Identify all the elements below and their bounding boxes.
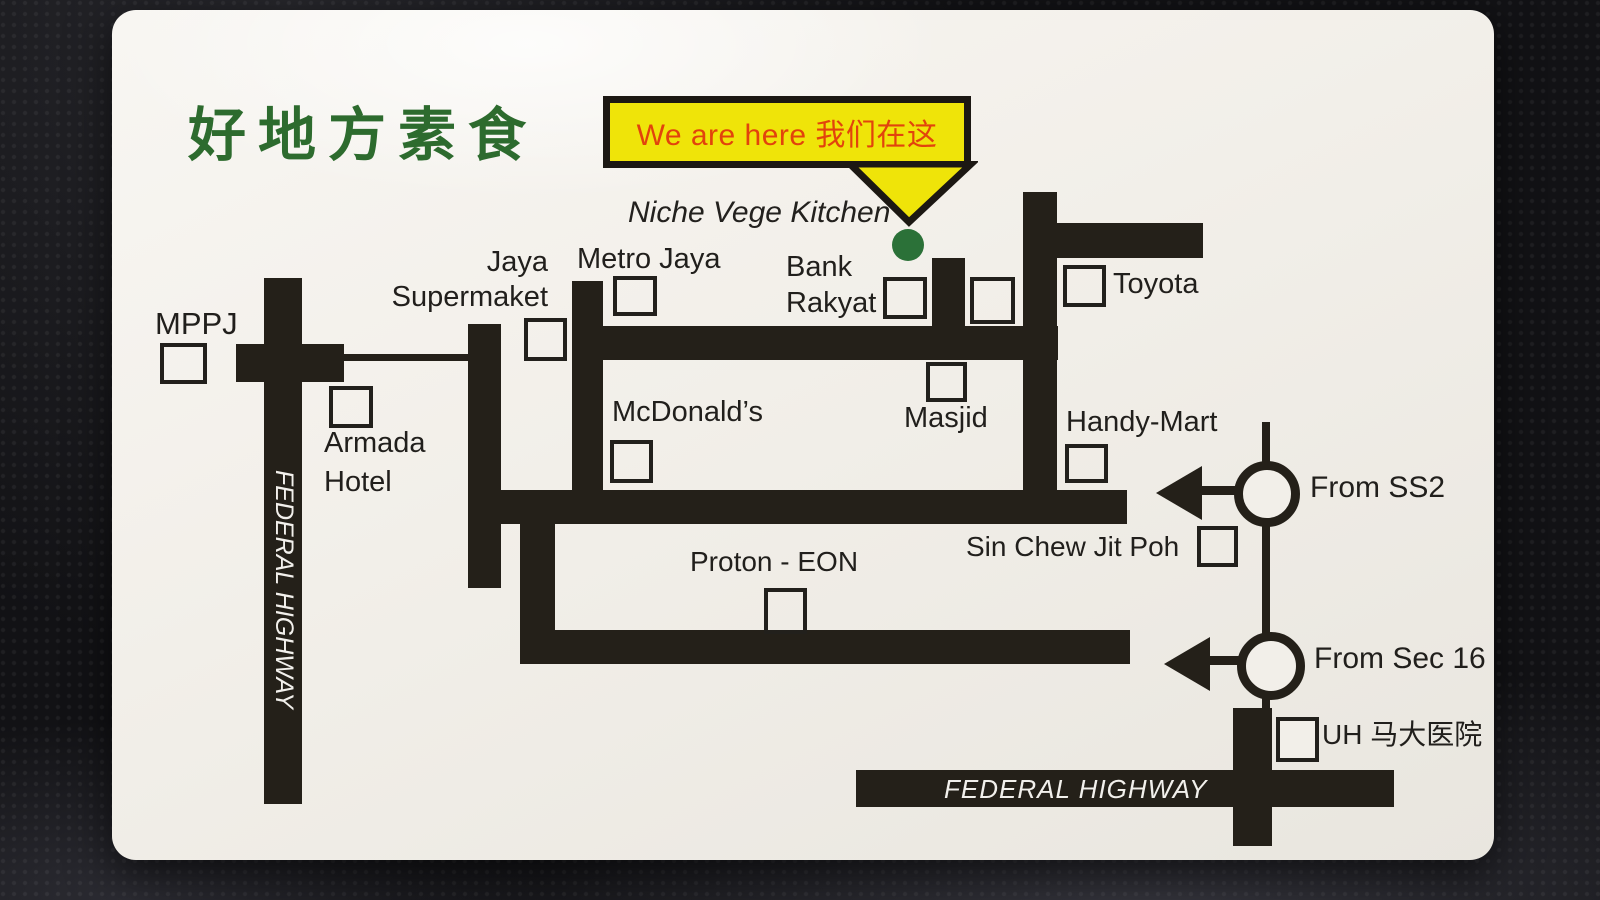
landmark-square-metro-jaya: [613, 276, 657, 316]
federal-highway-left-label: FEDERAL HIGHWAY: [269, 470, 298, 709]
road-bottom-crossing-vertical: [1233, 708, 1272, 846]
we-are-here-callout: We are here 我们在这: [603, 96, 971, 168]
road-block-top-horizontal: [572, 326, 1058, 360]
road-federal-highway-bottom: FEDERAL HIGHWAY: [856, 770, 1394, 807]
landmark-square-jaya-supermarket: [524, 318, 567, 361]
we-are-here-label: We are here 我们在这: [637, 110, 938, 154]
photo-background: 好地方素食 FEDERAL HIGHWAY FEDERAL HIGHWAY: [0, 0, 1600, 900]
landmark-square-uh-hospital: [1276, 717, 1319, 762]
restaurant-title-chinese: 好地方素食: [188, 88, 538, 172]
landmark-label-uh-hospital: UH 马大医院: [1322, 719, 1482, 751]
landmark-square-masjid: [926, 362, 967, 402]
landmark-square-toyota: [1063, 265, 1106, 307]
road-metro-jaya-vertical: [572, 281, 603, 523]
landmark-label-armada-hotel: Armada Hotel: [324, 424, 459, 502]
landmark-label-masjid: Masjid: [904, 402, 988, 435]
landmark-square-proton-eon: [764, 588, 807, 634]
landmark-label-mcdonalds: McDonald’s: [612, 396, 763, 429]
landmark-square-sin-chew: [1197, 526, 1238, 567]
arrow-tail-ss2: [1200, 486, 1238, 495]
arrow-tail-sec16: [1210, 656, 1242, 665]
landmark-label-sin-chew: Sin Chew Jit Poh: [966, 531, 1179, 563]
road-bottom-horizontal: [520, 630, 1130, 664]
direction-label-from-sec16: From Sec 16: [1314, 642, 1486, 676]
road-main-horizontal: [468, 490, 1127, 524]
arrow-left-icon-ss2: [1156, 466, 1202, 520]
road-bank-rakyat-stub: [932, 258, 965, 331]
road-jaya-vertical: [468, 324, 501, 588]
arrow-left-icon-sec16: [1164, 637, 1210, 691]
venue-name: Niche Vege Kitchen: [628, 196, 890, 230]
roundabout-from-ss2: [1234, 461, 1300, 527]
landmark-square-mcdonalds: [610, 440, 653, 483]
landmark-label-mppj: MPPJ: [155, 306, 238, 342]
location-dot: [892, 229, 924, 261]
landmark-label-metro-jaya: Metro Jaya: [577, 243, 720, 276]
roundabout-from-sec16: [1237, 632, 1305, 700]
federal-highway-bottom-label: FEDERAL HIGHWAY: [944, 774, 1208, 805]
road-thin-connector: [342, 354, 470, 361]
landmark-label-handy-mart: Handy-Mart: [1066, 406, 1218, 439]
road-cross-intersection: [236, 344, 344, 382]
direction-label-from-ss2: From SS2: [1310, 471, 1445, 505]
landmark-square-unlabeled: [970, 277, 1015, 324]
road-top-right-branch: [1056, 223, 1203, 258]
road-right-vertical: [1023, 192, 1057, 523]
landmark-square-handy-mart: [1065, 444, 1108, 483]
landmark-square-armada-hotel: [329, 386, 373, 428]
landmark-label-proton-eon: Proton - EON: [690, 546, 858, 578]
landmark-square-mppj: [160, 343, 207, 384]
map-content: 好地方素食 FEDERAL HIGHWAY FEDERAL HIGHWAY: [0, 0, 1600, 900]
landmark-label-bank-rakyat: Bank Rakyat: [786, 249, 891, 321]
landmark-label-jaya-supermarket: Jaya Supermaket: [378, 245, 548, 315]
landmark-label-toyota: Toyota: [1113, 268, 1198, 301]
